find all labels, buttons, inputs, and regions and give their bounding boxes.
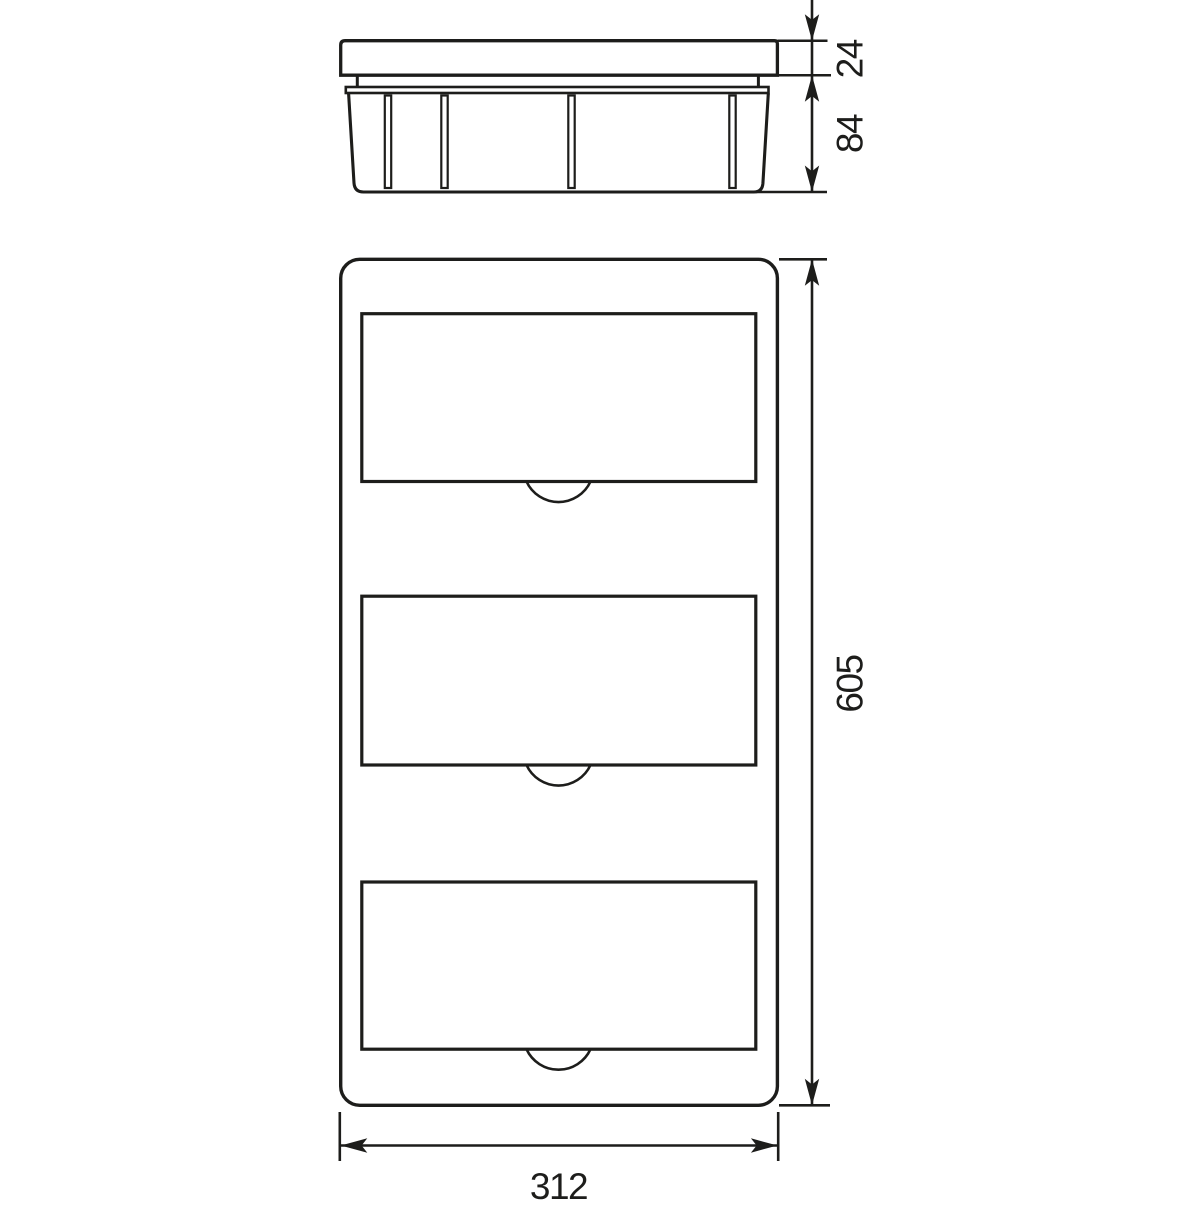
svg-text:84: 84 [830, 114, 871, 153]
svg-text:312: 312 [530, 1166, 587, 1200]
svg-text:605: 605 [830, 654, 871, 712]
svg-text:24: 24 [830, 39, 871, 78]
